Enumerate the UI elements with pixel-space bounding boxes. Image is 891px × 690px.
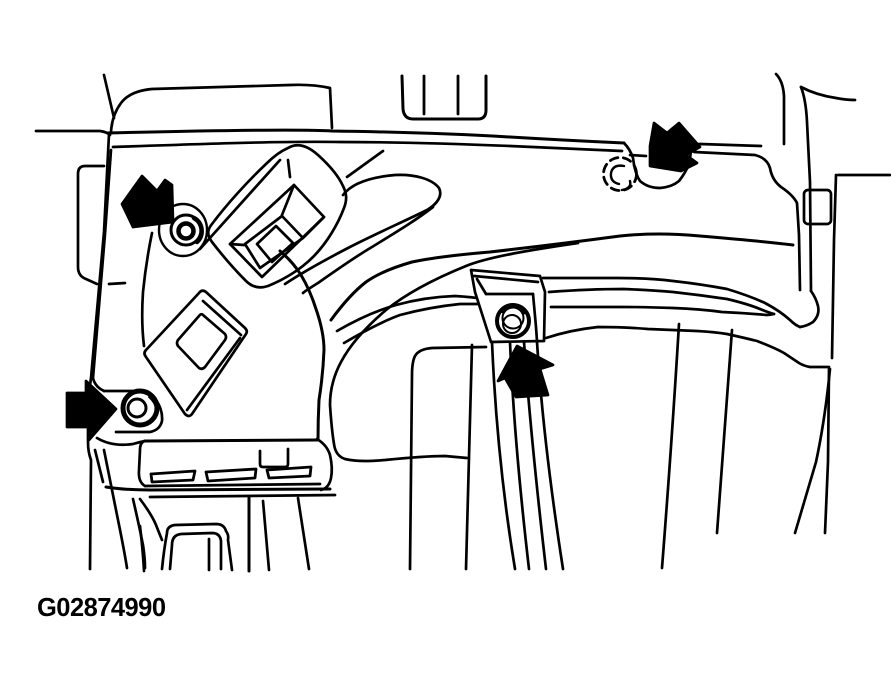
- svg-text:G02874990: G02874990: [37, 594, 166, 622]
